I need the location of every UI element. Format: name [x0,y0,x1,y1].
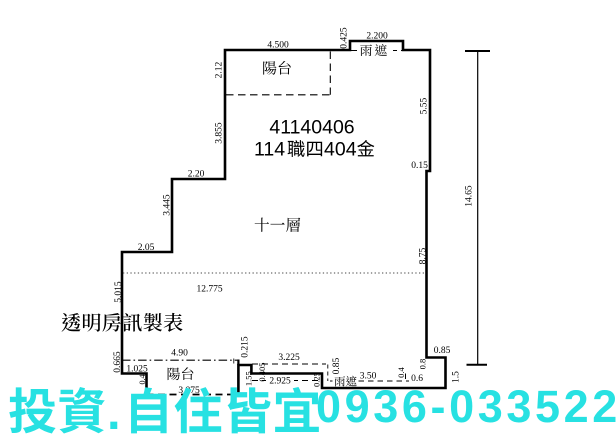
svg-text:0.665: 0.665 [113,351,123,373]
svg-text:0936-033522: 0936-033522 [316,381,616,432]
svg-text:1.55: 1.55 [244,371,254,386]
svg-text:5.015: 5.015 [114,281,124,303]
svg-text:114: 114 [254,139,285,161]
svg-text:.: . [107,386,121,437]
svg-text:4.500: 4.500 [267,41,289,51]
svg-text:3.445: 3.445 [163,194,173,216]
svg-text:0.8: 0.8 [418,359,428,370]
svg-text:0.85: 0.85 [332,357,342,374]
svg-text:2.200: 2.200 [366,32,388,42]
svg-text:4.90: 4.90 [171,349,188,359]
svg-text:8.75: 8.75 [419,247,429,264]
svg-text:2.12: 2.12 [215,61,225,78]
svg-text:0.15: 0.15 [411,161,428,171]
svg-text:1.025: 1.025 [126,365,148,375]
svg-text:3.225: 3.225 [278,353,300,363]
svg-text:0.405: 0.405 [257,362,267,381]
svg-text:3.50: 3.50 [360,372,377,382]
svg-text:0.85: 0.85 [434,346,451,356]
svg-text:14.65: 14.65 [465,185,475,207]
svg-text:12.775: 12.775 [196,285,222,295]
svg-text:404: 404 [324,139,357,161]
svg-text:0.4: 0.4 [396,366,406,377]
svg-text:5.55: 5.55 [420,97,430,114]
svg-text:41140406: 41140406 [269,117,354,139]
svg-text:2.05: 2.05 [138,243,155,253]
svg-text:0.215: 0.215 [241,336,251,358]
svg-text:2.20: 2.20 [188,170,205,180]
svg-text:3.855: 3.855 [215,122,225,144]
svg-text:0.425: 0.425 [340,27,350,49]
svg-text:0.4: 0.4 [138,375,147,385]
svg-text:2.925: 2.925 [269,377,291,387]
